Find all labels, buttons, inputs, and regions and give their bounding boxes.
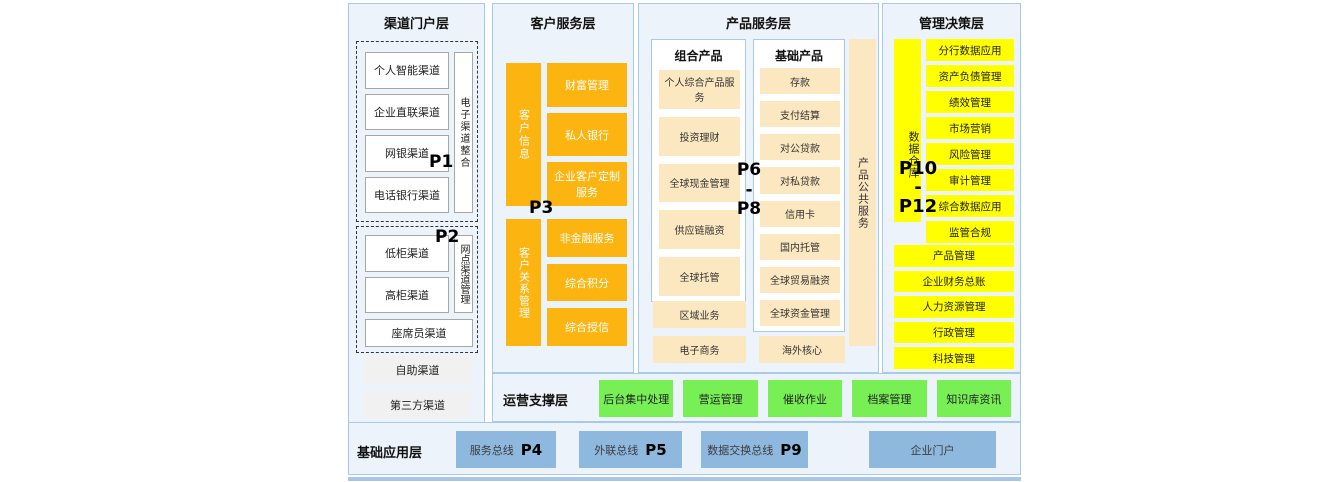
product-box: 对公贷款 [760,134,840,160]
product-box: 全球资金管理 [760,300,840,326]
product-box: 个人综合产品服务 [659,70,740,109]
combined-products-list: 个人综合产品服务投资理财全球现金管理供应链融资全球托管 [659,70,740,296]
product-box: 国内托管 [760,234,840,260]
channel-layer-title: 渠道门户层 [349,4,484,32]
channel-box: 高柜渠道 [365,277,449,314]
extra-channel-list: 自助渠道第三方渠道 [364,356,471,418]
product-box: 全球托管 [659,257,740,296]
operations-list: 后台集中处理营运管理催收作业档案管理知识库资讯 [599,380,1011,417]
management-box: 科技管理 [894,347,1014,369]
product-box: 支付结算 [760,101,840,127]
operations-layer-title: 运营支撑层 [503,390,568,409]
overseas-core-box: 海外核心 [759,336,845,363]
electronic-channel-integration-bar: 电子渠道整合 [454,52,473,213]
customer-service-box: 财富管理 [547,63,627,107]
basic-application-layer-panel: 基础应用层 服务总线P4 外联总线P5 数据交换总线P9 企业门户 [348,422,1021,475]
product-box: 存款 [760,68,840,94]
operations-box: 催收作业 [768,380,842,417]
product-service-layer-panel: 产品服务层 组合产品 个人综合产品服务投资理财全球现金管理供应链融资全球托管 P… [638,3,879,373]
p3-label: P3 [529,200,553,217]
service-bus-box: 服务总线P4 [456,431,556,468]
product-box: 供应链融资 [659,210,740,249]
customer-info-bar: 客户信息 [506,63,541,206]
operations-box: 知识库资讯 [937,380,1011,417]
customer-service-box: 企业客户定制服务 [547,162,627,206]
management-box: 企业财务总账 [894,271,1014,293]
electronic-channel-list: 个人智能渠道企业直联渠道网银渠道电话银行渠道 [365,52,449,213]
customer-service-box: 非金融服务 [547,219,627,257]
management-box: 资产负债管理 [926,65,1014,87]
operations-support-layer-panel: 运营支撑层 后台集中处理营运管理催收作业档案管理知识库资讯 [492,373,1021,422]
customer-service-list-1: 财富管理私人银行企业客户定制服务 [547,63,627,206]
channel-box: 自助渠道 [364,356,471,383]
customer-layer-title: 客户服务层 [493,4,633,32]
product-box: 投资理财 [659,117,740,156]
basic-products-list: 存款支付结算对公贷款对私贷款信用卡国内托管全球贸易融资全球资金管理 [760,68,840,326]
management-box: 产品管理 [894,245,1014,267]
product-layer-title: 产品服务层 [639,4,878,32]
base-layer-title: 基础应用层 [357,442,422,461]
p9-label: P9 [780,441,801,459]
customer-service-list-2: 非金融服务综合积分综合授信 [547,219,627,346]
combined-products-panel: 组合产品 个人综合产品服务投资理财全球现金管理供应链融资全球托管 [651,39,746,302]
customer-service-box: 私人银行 [547,113,627,157]
p5-label: P5 [645,441,666,459]
p4-label: P4 [521,441,542,459]
operations-box: 营运管理 [683,380,757,417]
customer-service-layer-panel: 客户服务层 客户信息 财富管理私人银行企业客户定制服务 P3 客户关系管理 非金… [492,3,634,373]
product-box: 信用卡 [760,201,840,227]
management-layer-title: 管理决策层 [883,4,1020,32]
banking-architecture-diagram: 渠道门户层 个人智能渠道企业直联渠道网银渠道电话银行渠道 电子渠道整合 P1 P… [0,0,1333,482]
product-box: 全球贸易融资 [760,267,840,293]
management-box: 监管合规 [926,221,1014,243]
product-box: 全球现金管理 [659,164,740,203]
product-public-services-bar: 产品公共服务 [849,39,876,346]
management-box: 市场营销 [926,117,1014,139]
p2-label: P2 [435,229,459,246]
agent-channel-box: 座席员渠道 [365,319,473,347]
management-box: 分行数据应用 [926,39,1014,61]
p1-label: P1 [429,154,453,171]
ecommerce-box: 电子商务 [653,336,746,363]
customer-service-box: 综合授信 [547,308,627,346]
p10-p12-label: P10 - P12 [887,160,949,217]
channel-portal-layer-panel: 渠道门户层 个人智能渠道企业直联渠道网银渠道电话银行渠道 电子渠道整合 P1 P… [348,3,485,423]
customer-service-box: 综合积分 [547,264,627,302]
external-bus-box: 外联总线P5 [579,431,682,468]
management-decision-layer-panel: 管理决策层 数据仓库 P10 - P12 分行数据应用资产负债管理绩效管理市场营… [882,3,1021,373]
bottom-accent-strip [348,477,1021,481]
data-exchange-bus-box: 数据交换总线P9 [701,431,808,468]
operations-box: 后台集中处理 [599,380,673,417]
management-wide-list: 产品管理企业财务总账人力资源管理行政管理科技管理 [894,245,1014,369]
branch-channel-group: P2 低柜渠道高柜渠道 网点渠道管理 座席员渠道 [356,226,478,353]
basic-products-title: 基础产品 [754,40,844,64]
electronic-channel-group: 个人智能渠道企业直联渠道网银渠道电话银行渠道 电子渠道整合 P1 [356,41,478,222]
channel-box: 第三方渠道 [364,391,471,418]
channel-box: 电话银行渠道 [365,177,449,214]
management-box: 行政管理 [894,322,1014,344]
enterprise-portal-box: 企业门户 [869,431,996,468]
customer-relationship-management-bar: 客户关系管理 [506,219,541,346]
channel-box: 企业直联渠道 [365,94,449,131]
channel-box: 个人智能渠道 [365,52,449,89]
management-box: 绩效管理 [926,91,1014,113]
basic-products-panel: 基础产品 存款支付结算对公贷款对私贷款信用卡国内托管全球贸易融资全球资金管理 [753,39,845,332]
management-box: 人力资源管理 [894,296,1014,318]
regional-business-box: 区域业务 [653,301,746,328]
product-box: 对私贷款 [760,167,840,193]
combined-products-title: 组合产品 [652,40,745,64]
operations-box: 档案管理 [852,380,926,417]
p6-p8-label: P6 - P8 [734,161,764,220]
